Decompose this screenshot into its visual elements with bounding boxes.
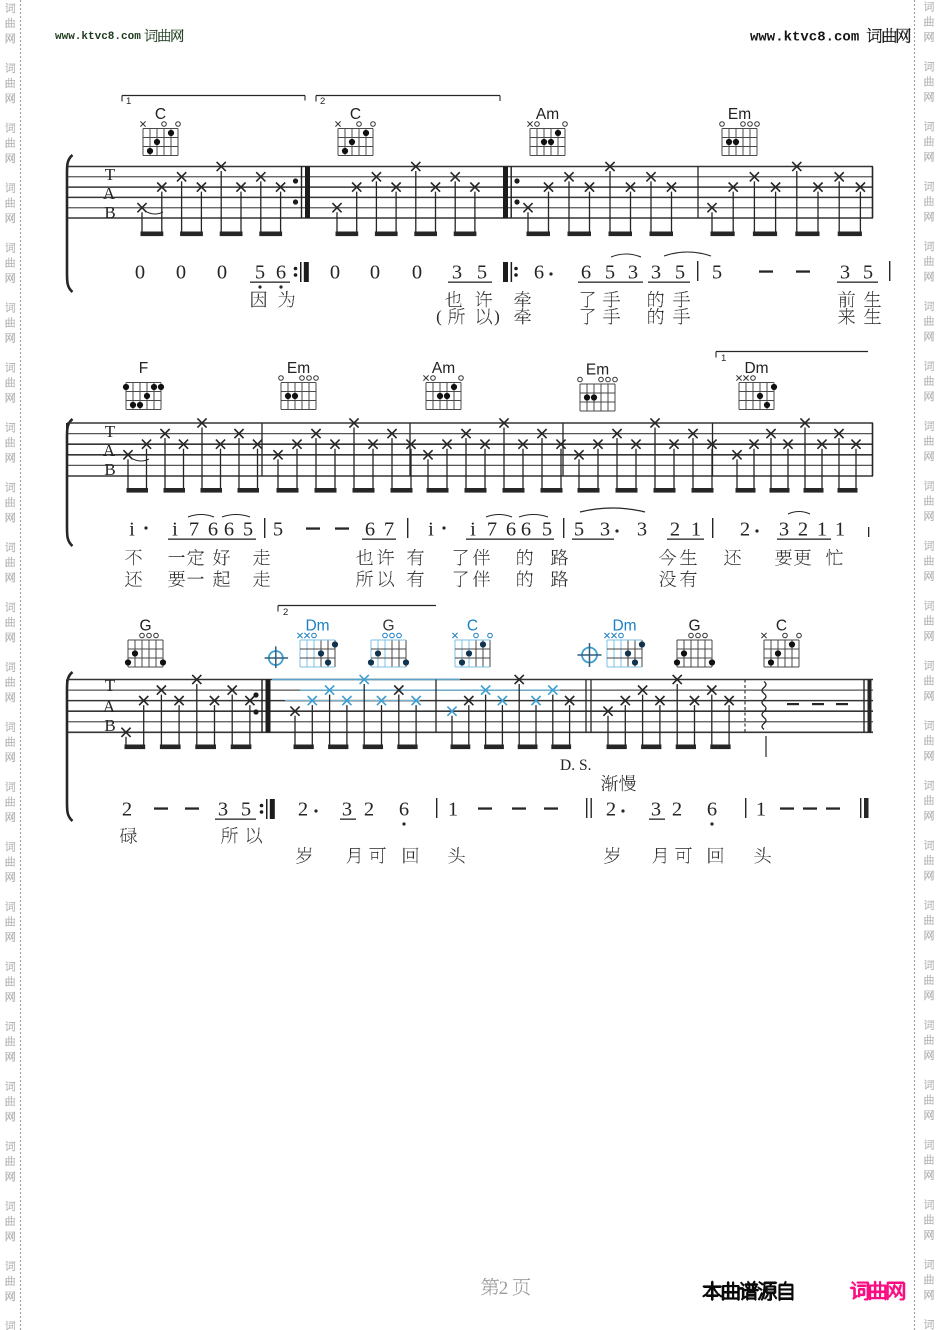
svg-text:C: C bbox=[350, 106, 361, 123]
svg-text:3: 3 bbox=[840, 262, 850, 284]
svg-text:6: 6 bbox=[521, 519, 531, 541]
svg-text:Em: Em bbox=[287, 360, 310, 377]
svg-text:1: 1 bbox=[817, 519, 827, 541]
svg-text:1: 1 bbox=[691, 519, 701, 541]
svg-text:C: C bbox=[467, 618, 478, 635]
svg-text:T: T bbox=[105, 676, 116, 695]
svg-text:T: T bbox=[105, 165, 116, 184]
svg-text:6: 6 bbox=[506, 519, 516, 541]
svg-text:7: 7 bbox=[384, 519, 394, 541]
svg-text:6: 6 bbox=[707, 799, 717, 821]
svg-text:Am: Am bbox=[432, 360, 455, 377]
svg-text:6: 6 bbox=[276, 262, 286, 284]
svg-text:A: A bbox=[103, 697, 116, 716]
svg-text:1: 1 bbox=[721, 353, 726, 364]
svg-text:G: G bbox=[382, 618, 394, 635]
svg-text:3: 3 bbox=[628, 262, 638, 284]
svg-text:G: G bbox=[688, 618, 700, 635]
svg-text:5: 5 bbox=[255, 262, 265, 284]
svg-text:5: 5 bbox=[542, 519, 552, 541]
svg-text:A: A bbox=[103, 184, 116, 203]
svg-text:i: i bbox=[428, 519, 434, 541]
svg-text:0: 0 bbox=[217, 262, 227, 284]
svg-text:2: 2 bbox=[364, 799, 374, 821]
svg-text:2: 2 bbox=[606, 799, 616, 821]
svg-text:6: 6 bbox=[208, 519, 218, 541]
svg-text:5: 5 bbox=[241, 799, 251, 821]
svg-text:5: 5 bbox=[712, 262, 722, 284]
svg-text:3: 3 bbox=[600, 519, 610, 541]
svg-text:(: ( bbox=[436, 307, 442, 326]
svg-text:0: 0 bbox=[330, 262, 340, 284]
svg-text:T: T bbox=[105, 422, 116, 441]
svg-text:6: 6 bbox=[399, 799, 409, 821]
svg-text:Dm: Dm bbox=[305, 618, 329, 635]
svg-text:2: 2 bbox=[122, 799, 132, 821]
svg-text:1: 1 bbox=[835, 519, 845, 541]
svg-text:2: 2 bbox=[798, 519, 808, 541]
svg-text:Em: Em bbox=[586, 362, 609, 379]
svg-text:Dm: Dm bbox=[744, 360, 768, 377]
svg-text:D. S.: D. S. bbox=[560, 757, 591, 774]
svg-text:i: i bbox=[129, 519, 135, 541]
svg-text:Em: Em bbox=[728, 106, 751, 123]
svg-text:B: B bbox=[104, 460, 115, 479]
svg-text:G: G bbox=[139, 618, 151, 635]
svg-text:5: 5 bbox=[477, 262, 487, 284]
svg-text:Am: Am bbox=[536, 106, 559, 123]
svg-text:i: i bbox=[470, 519, 476, 541]
svg-text:3: 3 bbox=[637, 519, 647, 541]
svg-text:2: 2 bbox=[283, 607, 288, 618]
svg-text:A: A bbox=[103, 441, 116, 460]
svg-text:6: 6 bbox=[581, 262, 591, 284]
svg-text:6: 6 bbox=[224, 519, 234, 541]
svg-text:3: 3 bbox=[651, 799, 661, 821]
svg-text:2: 2 bbox=[320, 96, 325, 107]
svg-text:2: 2 bbox=[672, 799, 682, 821]
svg-text:5: 5 bbox=[574, 519, 584, 541]
svg-text:3: 3 bbox=[651, 262, 661, 284]
svg-text:3: 3 bbox=[342, 799, 352, 821]
svg-text:7: 7 bbox=[189, 519, 199, 541]
svg-text:www.ktvc8.com: www.ktvc8.com bbox=[750, 30, 859, 46]
svg-text:5: 5 bbox=[675, 262, 685, 284]
svg-text:6: 6 bbox=[365, 519, 375, 541]
svg-text:5: 5 bbox=[863, 262, 873, 284]
svg-text:5: 5 bbox=[273, 519, 283, 541]
svg-text:6: 6 bbox=[534, 262, 544, 284]
svg-text:0: 0 bbox=[135, 262, 145, 284]
svg-text:5: 5 bbox=[605, 262, 615, 284]
svg-text:0: 0 bbox=[370, 262, 380, 284]
svg-text:3: 3 bbox=[452, 262, 462, 284]
svg-text:5: 5 bbox=[243, 519, 253, 541]
svg-text:1: 1 bbox=[126, 96, 131, 107]
svg-text:Dm: Dm bbox=[612, 618, 636, 635]
svg-text:2: 2 bbox=[298, 799, 308, 821]
svg-text:C: C bbox=[155, 106, 166, 123]
svg-text:3: 3 bbox=[218, 799, 228, 821]
svg-text:2: 2 bbox=[499, 1278, 509, 1299]
svg-text:2: 2 bbox=[670, 519, 680, 541]
svg-text:B: B bbox=[104, 716, 115, 735]
svg-text:i: i bbox=[172, 519, 178, 541]
svg-text:): ) bbox=[494, 307, 500, 326]
svg-text:7: 7 bbox=[487, 519, 497, 541]
svg-text:1: 1 bbox=[448, 799, 458, 821]
svg-text:www.ktvc8.com: www.ktvc8.com bbox=[55, 31, 141, 43]
svg-text:1: 1 bbox=[756, 799, 766, 821]
svg-text:C: C bbox=[776, 618, 787, 635]
svg-text:3: 3 bbox=[779, 519, 789, 541]
svg-text:B: B bbox=[104, 203, 115, 222]
svg-text:2: 2 bbox=[740, 519, 750, 541]
svg-text:F: F bbox=[139, 360, 148, 377]
svg-text:0: 0 bbox=[412, 262, 422, 284]
svg-text:0: 0 bbox=[176, 262, 186, 284]
